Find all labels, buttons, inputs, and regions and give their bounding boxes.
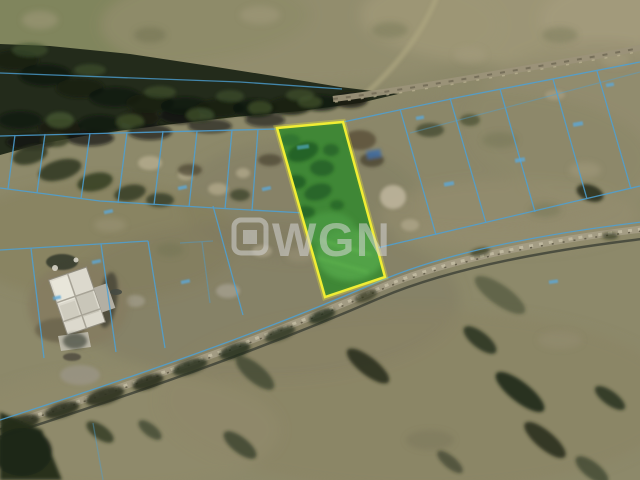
aerial-photo-canvas: WGN (0, 0, 640, 480)
aerial-listing-photo: WGN (0, 0, 640, 480)
wgn-logo-inner-square (243, 230, 257, 244)
wgn-logo-text: WGN (272, 213, 391, 266)
